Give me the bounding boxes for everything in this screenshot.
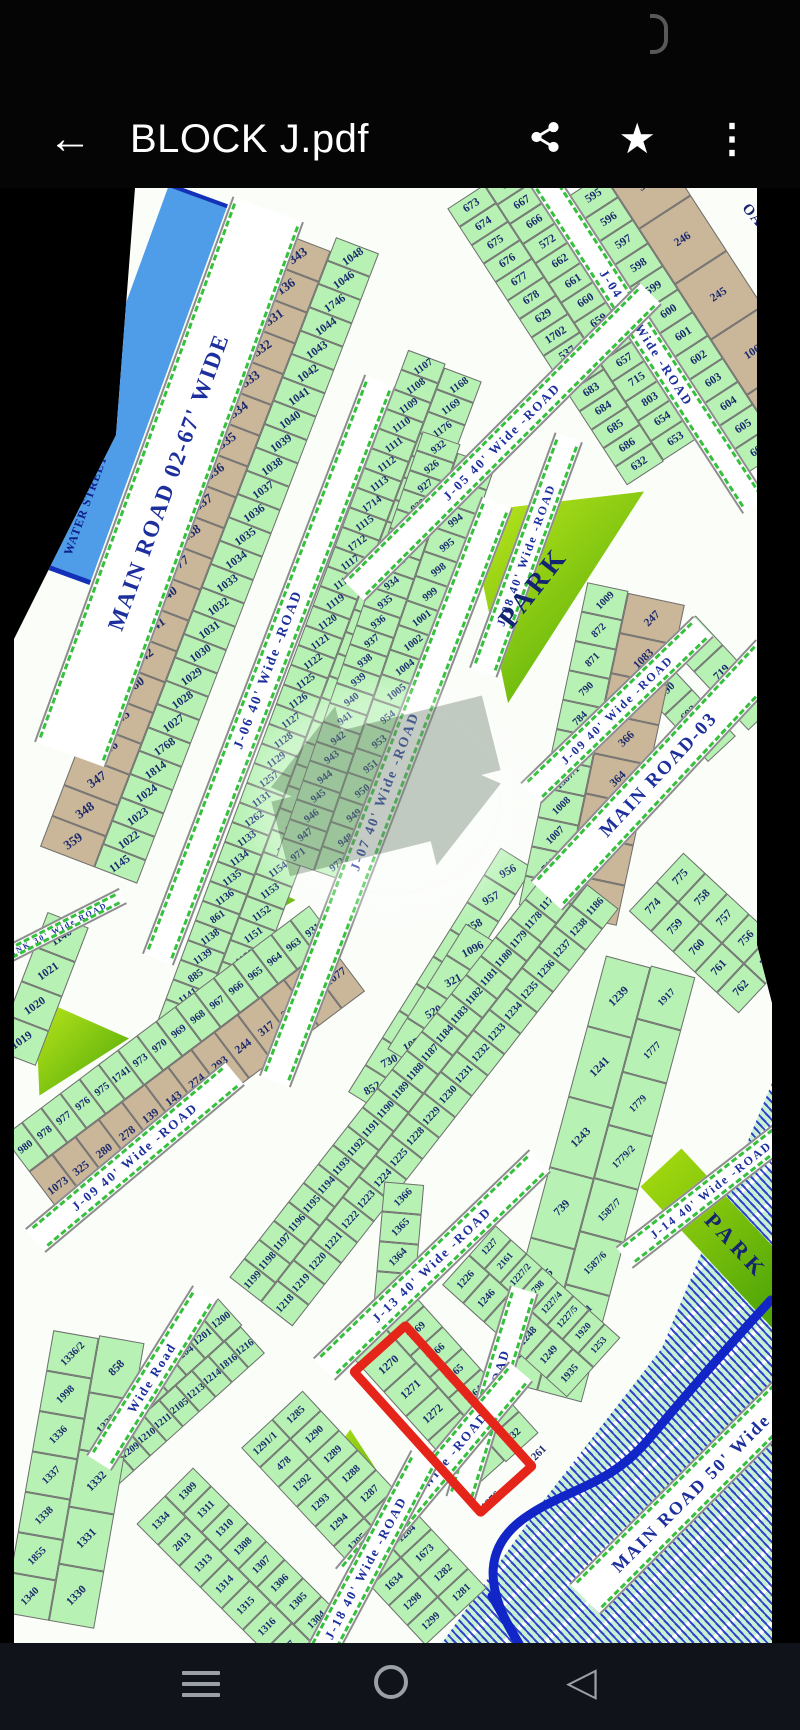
plot-cell: 1336 <box>32 1411 84 1459</box>
back-arrow-icon[interactable]: ← <box>48 117 92 161</box>
plot-cell: 1338 <box>18 1492 70 1540</box>
plot-cell: 1331 <box>59 1507 114 1572</box>
plot-cell: 1337 <box>25 1451 77 1499</box>
road-label-partial: OAD <box>738 201 774 240</box>
plot-cell: 1855 <box>11 1532 63 1580</box>
plot-cell: 1998 <box>39 1371 91 1419</box>
nav-menu-icon[interactable] <box>182 1671 220 1704</box>
pdf-map-view[interactable]: WATER STREET MAIN ROAD 02-67' WIDEJ-04 4… <box>14 188 772 1643</box>
app-bar: ← BLOCK J.pdf ★ ⋮ <box>0 90 800 188</box>
status-bar <box>0 0 800 90</box>
overflow-menu-icon[interactable]: ⋮ <box>712 119 752 159</box>
share-icon[interactable] <box>528 120 562 159</box>
star-bookmark-icon[interactable]: ★ <box>618 118 656 160</box>
nav-home-icon[interactable] <box>374 1665 408 1699</box>
plot-cell: 1340 <box>4 1572 56 1620</box>
status-indicator-icon <box>650 14 668 54</box>
plot-cell: 1336/2 <box>46 1330 98 1378</box>
plot-cell: 1330 <box>49 1564 104 1629</box>
plot-cell: 1365 <box>379 1211 421 1244</box>
android-nav-bar: ◁ <box>0 1643 800 1730</box>
plot-map-page: WATER STREET MAIN ROAD 02-67' WIDEJ-04 4… <box>14 188 772 1643</box>
document-title: BLOCK J.pdf <box>130 117 369 162</box>
plot-cell: 1366 <box>382 1181 424 1214</box>
app-bar-actions: ★ ⋮ <box>528 118 752 160</box>
water-street-label: WATER STREET <box>60 453 110 557</box>
nav-back-icon[interactable]: ◁ <box>566 1659 597 1705</box>
